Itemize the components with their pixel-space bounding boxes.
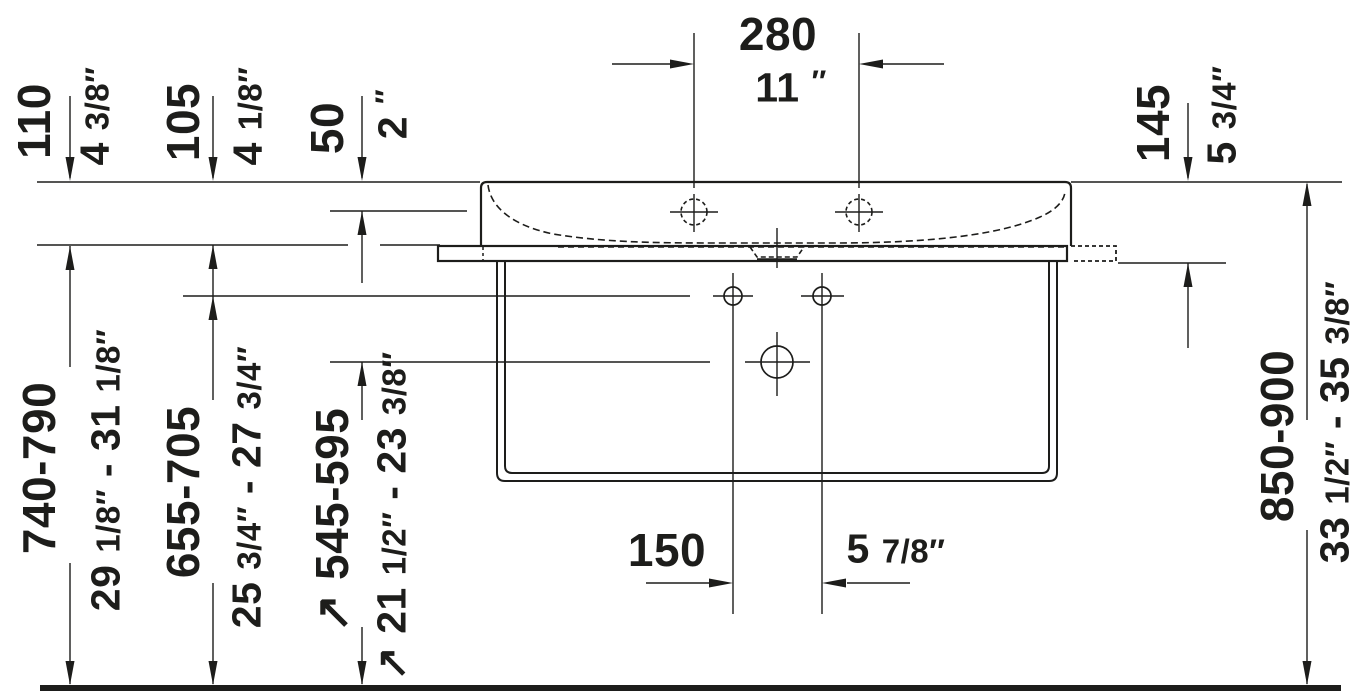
dim-655-705-inch: 25 3/4″ - 27 3/4″ <box>227 346 268 628</box>
dim-150-mm: 150 <box>628 527 706 573</box>
dim-545-595-inch: ↗ 21 1/2″ - 23 3/8″ <box>372 351 413 680</box>
basin-outline <box>438 182 1071 261</box>
dim-110-mm: 110 <box>11 83 57 159</box>
dim-110-inch: 4 3/8″ <box>75 67 116 166</box>
dim-545-595-mm: ↗ 545-595 <box>309 408 355 633</box>
hidden-slab-extension <box>1071 246 1116 261</box>
floor-line <box>40 685 1341 691</box>
dim-50-inch: 2 ″ <box>373 89 414 140</box>
dim-740-790-mm: 740-790 <box>16 382 62 554</box>
dim-850-900-mm: 850-900 <box>1254 350 1300 522</box>
dim-105-inch: 4 1/8″ <box>228 67 269 166</box>
dim-655-705-mm: 655-705 <box>160 406 206 578</box>
dim-50-mm: 50 <box>304 102 350 154</box>
dim-105-mm: 105 <box>160 83 206 161</box>
dim-145-mm: 145 <box>1130 84 1176 162</box>
dim-740-790-inch: 29 1/8″ - 31 1/8″ <box>86 329 127 611</box>
ceramic-slab <box>438 246 1067 261</box>
dim-tap-spacing-mm: 280 <box>739 11 817 57</box>
dim-150-inch: 5 7/8″ <box>847 529 946 570</box>
dim-850-900-inch: 33 1/2″ - 35 3/8″ <box>1315 281 1356 563</box>
dim-145-inch: 5 3/4″ <box>1202 66 1243 165</box>
washbasin-technical-drawing: 280 11 ″ 110 4 3/8″ 105 4 1/8″ 50 2 ″ 14… <box>0 0 1371 692</box>
dim-tap-spacing-inch: 11 ″ <box>755 68 827 109</box>
